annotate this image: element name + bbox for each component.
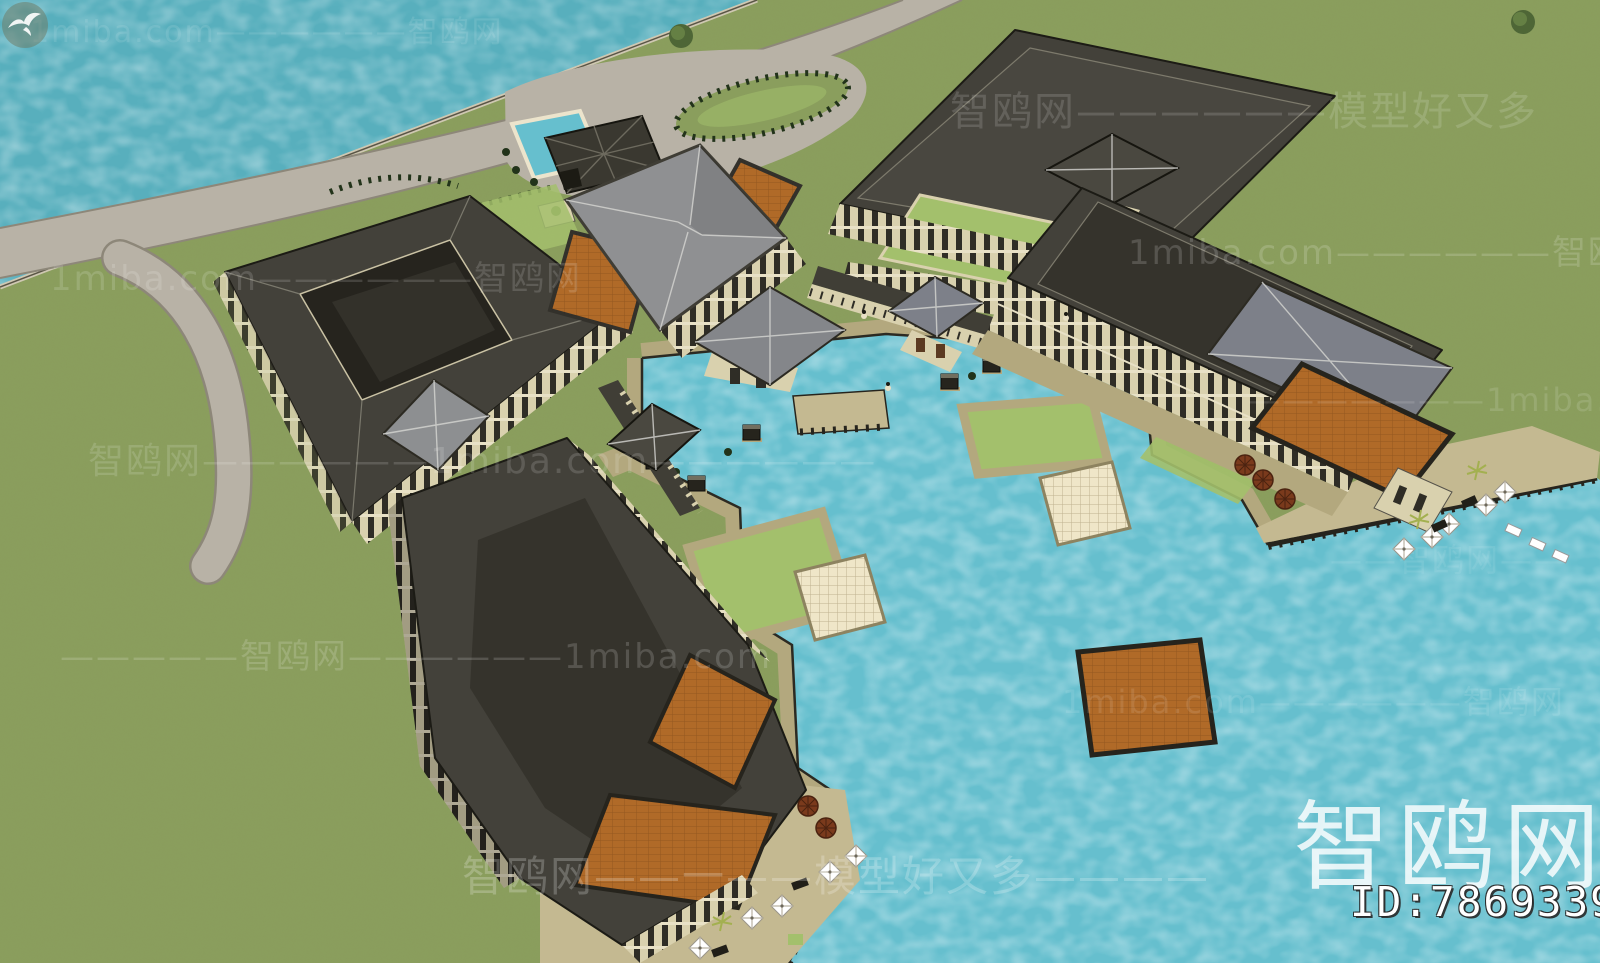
model-id-label: ID:786933903 [1350,878,1600,926]
seagull-icon [0,0,50,50]
orange-platform [1078,640,1215,755]
render-canvas: 1miba.com——————智鸥网 智鸥网——————模型好又多 1miba.… [0,0,1600,963]
pool-dock [793,390,889,434]
